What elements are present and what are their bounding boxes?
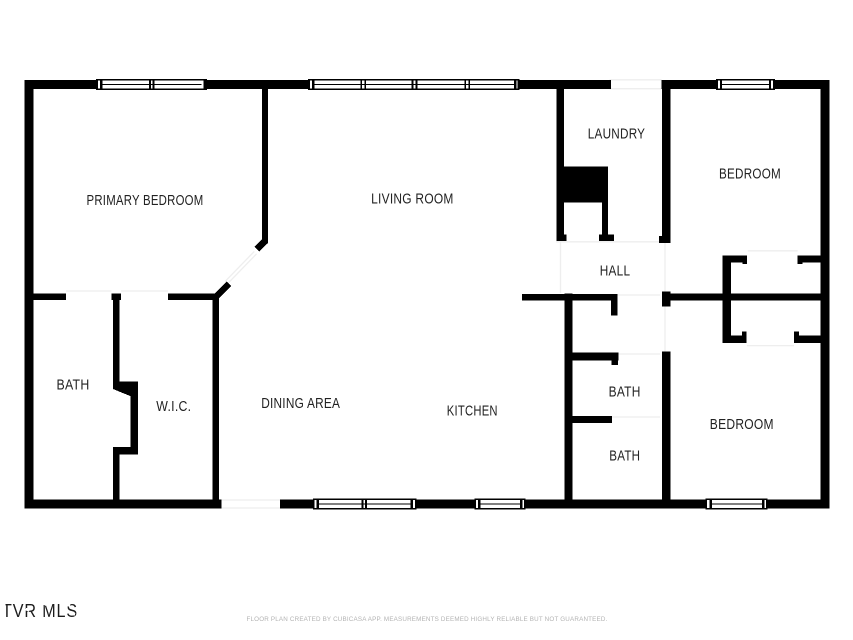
svg-text:BEDROOM: BEDROOM	[719, 166, 781, 182]
svg-text:W.I.C.: W.I.C.	[156, 399, 191, 415]
svg-text:PRIMARY BEDROOM: PRIMARY BEDROOM	[87, 193, 204, 209]
svg-text:FLOOR PLAN CREATED BY CUBICASA: FLOOR PLAN CREATED BY CUBICASA APP. MEAS…	[247, 616, 608, 623]
svg-text:HALL: HALL	[600, 263, 631, 279]
svg-text:LAUNDRY: LAUNDRY	[588, 126, 646, 142]
svg-text:BATH: BATH	[57, 377, 90, 393]
svg-text:BATH: BATH	[609, 448, 640, 464]
svg-text:BATH: BATH	[609, 384, 641, 400]
svg-text:BEDROOM: BEDROOM	[710, 417, 774, 433]
svg-text:DINING AREA: DINING AREA	[261, 396, 340, 412]
svg-text:LIVING ROOM: LIVING ROOM	[371, 192, 454, 208]
svg-text:KITCHEN: KITCHEN	[447, 403, 498, 419]
svg-text:TVR MLS: TVR MLS	[2, 600, 78, 621]
